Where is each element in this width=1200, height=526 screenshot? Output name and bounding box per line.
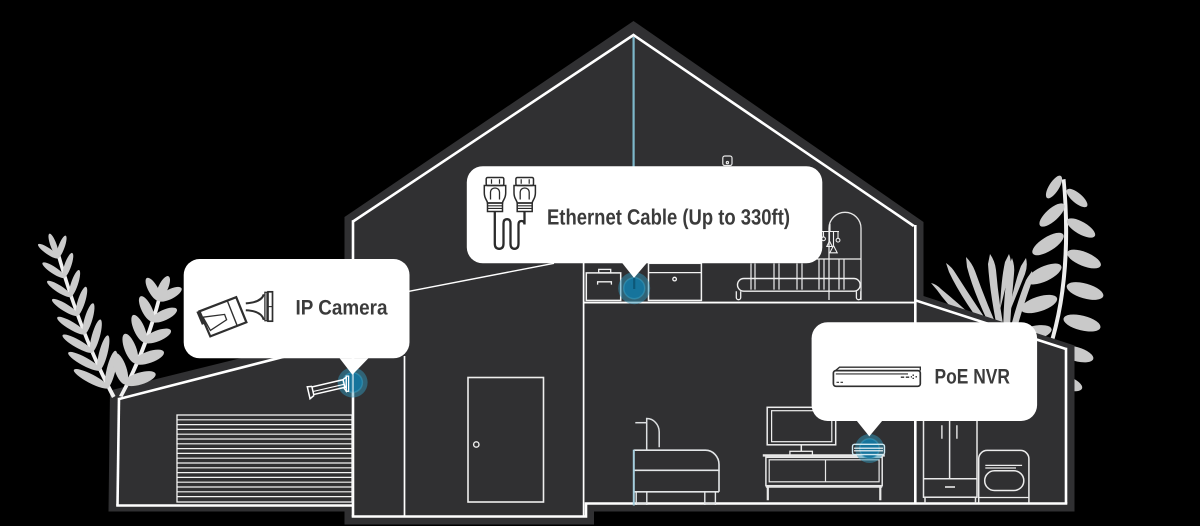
svg-text:Ethernet Cable (Up to 330ft): Ethernet Cable (Up to 330ft): [547, 205, 790, 230]
svg-text:PoE NVR: PoE NVR: [935, 366, 1011, 389]
svg-text:IP Camera: IP Camera: [296, 297, 388, 320]
